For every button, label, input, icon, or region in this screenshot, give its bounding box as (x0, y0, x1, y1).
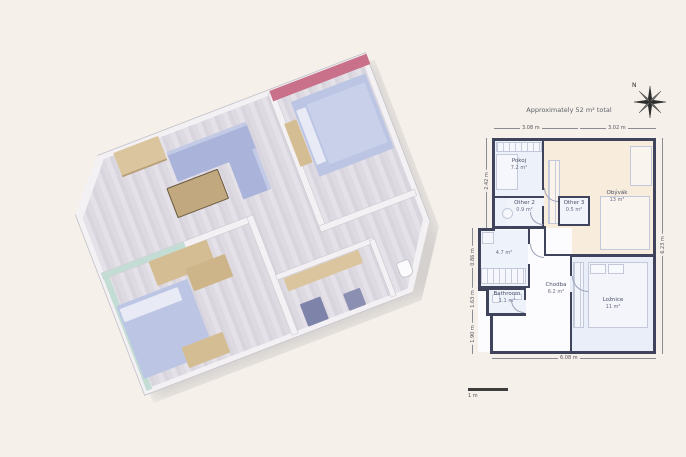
wall-outer-left-kitchen (478, 228, 481, 290)
wall-outer-left-bath (486, 288, 489, 316)
compass-rose: N (630, 82, 670, 122)
room-name: Pokoj (499, 158, 539, 165)
label-obyvak: Obývák 13 m² (593, 190, 641, 203)
wall-pokoj-bottom (492, 226, 546, 229)
label-other2: Other 2 0.9 m² (506, 200, 543, 213)
wall-other2-top (494, 196, 544, 198)
room-name: Ložnice (591, 297, 635, 304)
wall-obyvak-left-lower (544, 226, 546, 254)
wall-loznice-top (570, 254, 656, 257)
compass-north-label: N (632, 82, 637, 89)
wall-kitchen-right-a (528, 228, 530, 244)
wall-obyvak-chodba (544, 254, 572, 256)
room-area: 13 m² (593, 197, 641, 203)
obyvak-sofa-2d (630, 146, 652, 186)
wall-kitchen-right-b (528, 264, 530, 288)
wall-other3-top (558, 196, 590, 198)
label-other3: Other 3 0.5 m² (560, 200, 588, 213)
loznice-pillow2-2d (608, 264, 624, 274)
wall-outer-left-lower (490, 313, 493, 354)
floorplan-page: { "page": { "background": "#f5f1ea" }, "… (0, 0, 686, 457)
room-area: 7.2 m² (499, 165, 539, 171)
wall-loznice-left-a (570, 254, 572, 276)
label-chodba: Chodba 6.2 m² (536, 282, 576, 295)
room-area: 0.9 m² (506, 207, 543, 213)
scale-bar (468, 388, 508, 391)
label-bathroom: Bathroom 1.1 m² (490, 291, 524, 304)
wall-bathroom-right-a (524, 288, 526, 300)
room-name: Chodba (536, 282, 576, 289)
obyvak-bed-2d (600, 196, 650, 250)
room-name: Bathroom (490, 291, 524, 298)
dim-top-right: 3.02 m (606, 125, 628, 131)
dim-left-4: 1.90 m (470, 323, 476, 345)
dim-left-3: 1.63 m (470, 288, 476, 310)
room-area: 0.5 m² (560, 207, 588, 213)
room-area: 4.7 m² (484, 250, 524, 256)
dim-left-2: 0.86 m (470, 246, 476, 268)
room-name: Other 2 (506, 200, 543, 207)
wall-loznice-left-b (570, 292, 572, 352)
room-area: 1.1 m² (490, 298, 524, 304)
label-pokoj: Pokoj 7.2 m² (499, 158, 539, 171)
label-kitchen: 4.7 m² (484, 250, 524, 256)
dim-left-1: 2.42 m (484, 170, 490, 192)
scale-bar-label: 1 m (468, 393, 478, 399)
room-name: Obývák (593, 190, 641, 197)
loznice-pillow1-2d (590, 264, 606, 274)
dim-bottom: 6.08 m (558, 355, 580, 361)
kitchen-counter-2d (480, 268, 526, 284)
room-area: 11 m² (591, 304, 635, 310)
wall-outer-bottom (490, 351, 656, 354)
dim-top-left: 3.08 m (520, 125, 542, 131)
apartment-3d-view (58, 52, 453, 396)
wall-other3-bottom (558, 224, 590, 226)
wall-bathroom-bottom (486, 313, 526, 316)
room-name: Other 3 (560, 200, 588, 207)
wall-outer-right (653, 138, 656, 354)
wall-bathroom-top (486, 288, 526, 290)
wall-pokoj-obyvak-a (542, 138, 544, 190)
room-area: 6.2 m² (536, 289, 576, 295)
wall-outer-top (492, 138, 656, 141)
apartment-2d-plan: Pokoj 7.2 m² Obývák 13 m² Other 2 0.9 m²… (478, 136, 660, 356)
label-loznice: Ložnice 11 m² (591, 297, 635, 310)
kitchen-stove-2d (482, 232, 494, 244)
wall-other3-right (588, 196, 590, 226)
wall-outer-left-upper (492, 138, 495, 230)
pokoj-wardrobe-2d (496, 142, 542, 152)
dim-right: 6.23 m (660, 234, 666, 256)
